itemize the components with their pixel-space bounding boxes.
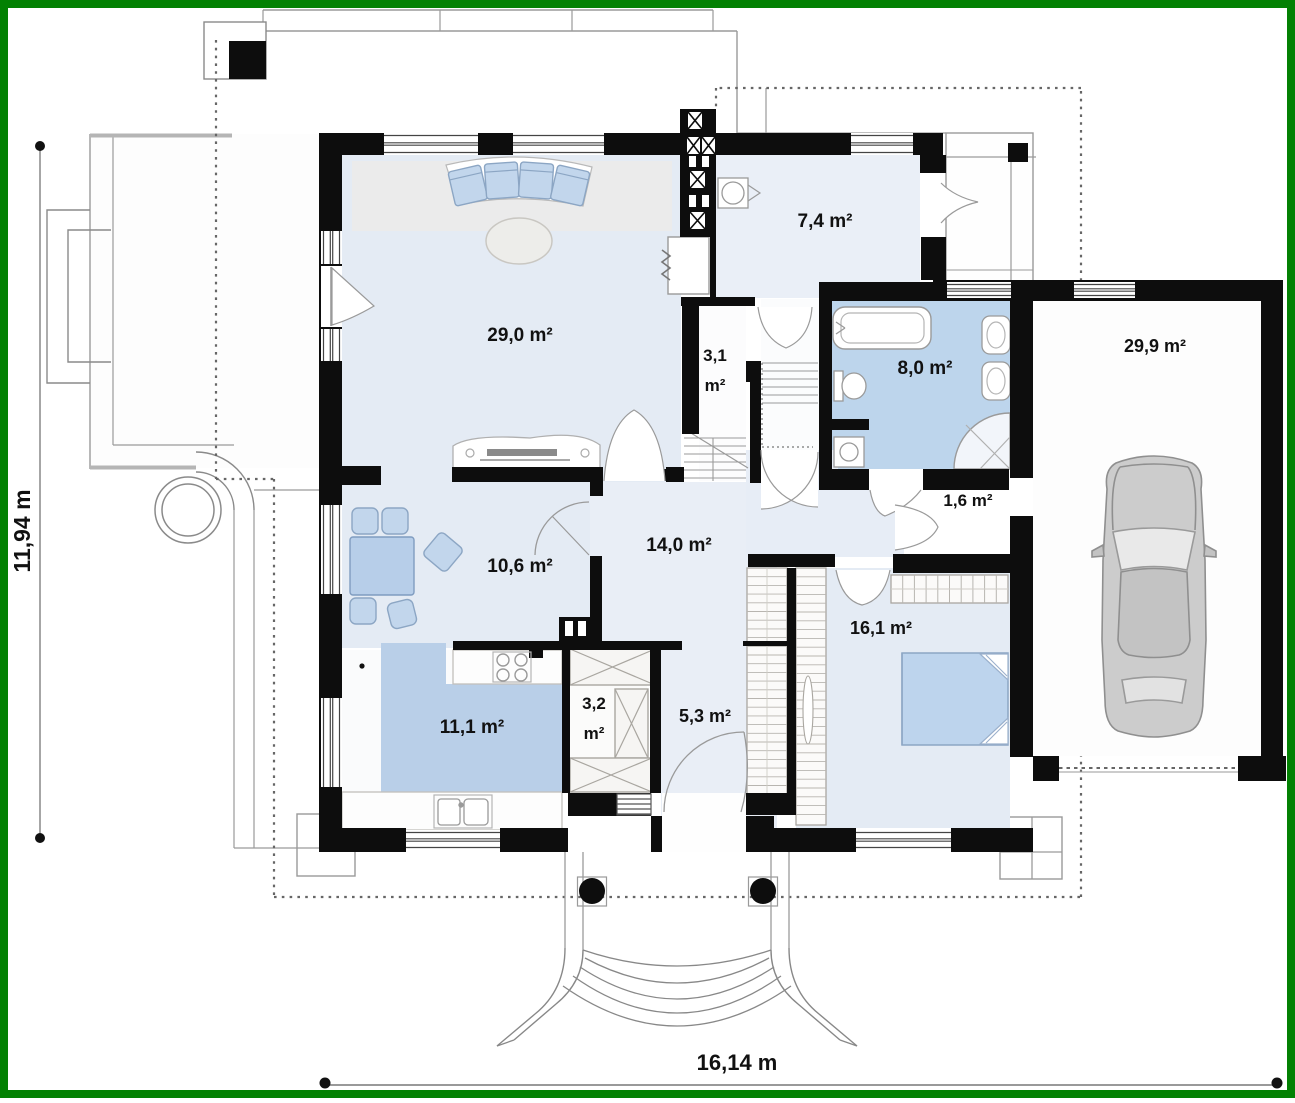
svg-text:10,6 m²: 10,6 m² — [487, 556, 552, 577]
svg-text:3,2: 3,2 — [582, 694, 606, 713]
svg-text:14,0 m²: 14,0 m² — [646, 535, 711, 556]
svg-text:8,0 m²: 8,0 m² — [898, 358, 953, 379]
svg-text:m²: m² — [705, 376, 726, 395]
svg-text:29,9 m²: 29,9 m² — [1124, 336, 1186, 356]
svg-text:7,4 m²: 7,4 m² — [798, 211, 853, 232]
svg-text:5,3 m²: 5,3 m² — [679, 706, 731, 726]
svg-text:29,0 m²: 29,0 m² — [487, 325, 552, 346]
svg-text:1,6 m²: 1,6 m² — [943, 491, 992, 510]
svg-text:3,1: 3,1 — [703, 346, 727, 365]
svg-text:16,14 m: 16,14 m — [697, 1050, 778, 1075]
svg-text:16,1 m²: 16,1 m² — [850, 618, 912, 638]
svg-text:11,1 m²: 11,1 m² — [440, 717, 504, 738]
svg-text:11,94 m: 11,94 m — [9, 489, 35, 572]
svg-text:m²: m² — [584, 724, 605, 743]
